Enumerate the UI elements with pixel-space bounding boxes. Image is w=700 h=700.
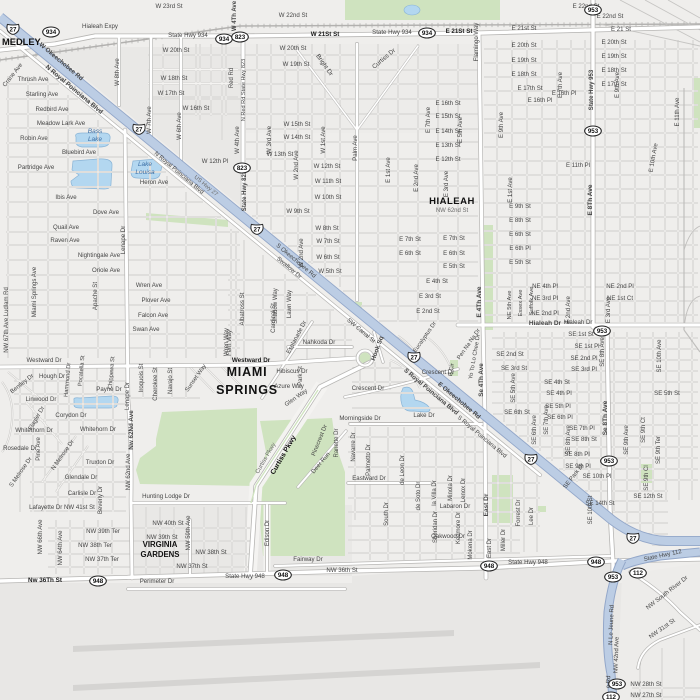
svg-text:NW 37th Ter: NW 37th Ter — [85, 556, 119, 563]
svg-text:HIALEAH: HIALEAH — [429, 196, 475, 207]
svg-text:Linwood Dr: Linwood Dr — [26, 396, 57, 403]
svg-text:Whitehorn Dr: Whitehorn Dr — [80, 426, 116, 433]
svg-text:Heron Ave: Heron Ave — [140, 179, 169, 186]
svg-text:27: 27 — [411, 355, 418, 362]
svg-text:SE 8th Ave: SE 8th Ave — [600, 337, 606, 367]
svg-text:NW 39th Ter: NW 39th Ter — [86, 528, 120, 535]
svg-text:NE 2nd Pl: NE 2nd Pl — [531, 310, 558, 317]
svg-text:NW 40th St: NW 40th St — [152, 520, 183, 527]
svg-text:MEDLEY: MEDLEY — [2, 37, 42, 47]
svg-text:E 8Th Ave: E 8Th Ave — [587, 184, 594, 215]
svg-text:E 7th St: E 7th St — [443, 235, 465, 242]
svg-text:NW 36th St: NW 36th St — [326, 567, 357, 574]
svg-text:de Soto Dr: de Soto Dr — [416, 482, 422, 511]
svg-text:Westward Dr: Westward Dr — [232, 357, 271, 364]
svg-text:Apache St: Apache St — [92, 282, 99, 310]
svg-text:E 5th St: E 5th St — [443, 263, 465, 270]
svg-text:948: 948 — [93, 578, 104, 585]
svg-text:E 6th St: E 6th St — [509, 231, 531, 238]
svg-text:Lenape Dr: Lenape Dr — [125, 382, 131, 410]
svg-text:Meadow Lark Ave: Meadow Lark Ave — [37, 120, 86, 127]
svg-text:Flamingo Way: Flamingo Way — [473, 22, 480, 62]
svg-text:NW 67th Ave Ludlam Rd: NW 67th Ave Ludlam Rd — [4, 287, 10, 353]
svg-text:W 4th Ave: W 4th Ave — [234, 126, 241, 154]
svg-text:Thrush Ave: Thrush Ave — [18, 76, 49, 83]
svg-text:SE 12th St: SE 12th St — [633, 493, 662, 500]
svg-text:Navajo St: Navajo St — [168, 368, 174, 394]
svg-text:Glendale Dr: Glendale Dr — [65, 474, 98, 481]
svg-text:934: 934 — [46, 29, 57, 36]
svg-text:27: 27 — [630, 536, 637, 543]
svg-text:Lake Dr: Lake Dr — [413, 412, 434, 419]
svg-text:E 6th St: E 6th St — [399, 250, 421, 257]
svg-text:E 6th Pl: E 6th Pl — [509, 245, 530, 252]
svg-text:SE 7th Ave: SE 7th Ave — [544, 405, 550, 435]
svg-text:State Hwy 953: State Hwy 953 — [589, 69, 595, 110]
svg-text:Sheridan Dr: Sheridan Dr — [433, 511, 439, 543]
svg-text:NW 28th St: NW 28th St — [630, 681, 661, 688]
svg-text:SE 8th Ave: SE 8th Ave — [566, 425, 572, 455]
svg-text:Corydon Dr: Corydon Dr — [55, 412, 86, 419]
svg-text:SE 5th Ave: SE 5th Ave — [511, 373, 517, 403]
svg-text:W 9th St: W 9th St — [286, 208, 310, 215]
svg-text:Essex Ave: Essex Ave — [518, 290, 524, 317]
svg-text:E 12th St: E 12th St — [435, 156, 460, 163]
svg-text:Navarre Dr: Navarre Dr — [351, 432, 357, 461]
svg-text:SE 9th Cl: SE 9th Cl — [644, 465, 650, 490]
svg-text:Nw 62Nd Ave: Nw 62Nd Ave — [128, 410, 135, 450]
svg-text:Nightingale Ave: Nightingale Ave — [78, 252, 121, 259]
svg-text:Swan Ave: Swan Ave — [133, 326, 161, 333]
svg-text:948: 948 — [278, 572, 289, 579]
svg-text:SE 3rd Pl: SE 3rd Pl — [571, 366, 597, 373]
svg-text:SE 1st Pl: SE 1st Pl — [574, 343, 599, 350]
svg-text:SE 10th St: SE 10th St — [588, 495, 594, 524]
svg-text:Westward Dr: Westward Dr — [26, 357, 61, 364]
svg-text:NW 38th St: NW 38th St — [195, 549, 226, 556]
svg-text:E 3rd St: E 3rd St — [419, 293, 441, 300]
svg-text:Morningside Dr: Morningside Dr — [339, 415, 380, 422]
svg-text:South Dr: South Dr — [384, 502, 390, 526]
svg-text:948: 948 — [484, 563, 495, 570]
svg-text:E 6th St: E 6th St — [443, 250, 465, 257]
svg-text:E 3rd Ave: E 3rd Ave — [443, 170, 450, 197]
svg-text:27: 27 — [10, 27, 17, 34]
svg-text:Ranette Dr: Ranette Dr — [334, 428, 340, 457]
svg-text:Mokena Dr: Mokena Dr — [468, 530, 474, 559]
svg-text:SE 4th Pl: SE 4th Pl — [546, 390, 571, 397]
svg-text:Se 4Th Ave: Se 4Th Ave — [478, 363, 485, 397]
svg-text:East Dr: East Dr — [483, 493, 490, 516]
svg-text:NW 59th Ave: NW 59th Ave — [186, 515, 192, 551]
svg-text:NE 5th Ave: NE 5th Ave — [507, 291, 513, 320]
svg-text:de Leon Dr: de Leon Dr — [400, 455, 406, 485]
svg-text:W 3rd Ave: W 3rd Ave — [266, 125, 273, 154]
svg-text:Dove Ave: Dove Ave — [93, 209, 120, 216]
svg-text:Lafayette Dr NW 41st St: Lafayette Dr NW 41st St — [29, 504, 95, 511]
svg-text:SE 4th St: SE 4th St — [544, 379, 570, 386]
svg-text:State Hwy 948: State Hwy 948 — [508, 559, 548, 566]
svg-text:Edison Dr: Edison Dr — [265, 520, 271, 546]
svg-text:E 16th Pl: E 16th Pl — [528, 97, 553, 104]
svg-text:934: 934 — [219, 36, 230, 43]
svg-text:W 4Th Ave: W 4Th Ave — [232, 0, 238, 31]
svg-text:Bass: Bass — [88, 128, 103, 135]
svg-text:Raven Ave: Raven Ave — [50, 237, 80, 244]
svg-text:NW 27th St: NW 27th St — [630, 692, 661, 699]
svg-text:W 18th St: W 18th St — [161, 75, 188, 82]
svg-text:E 19th St: E 19th St — [601, 53, 626, 60]
svg-text:E 21 St: E 21 St — [611, 26, 631, 33]
svg-text:Quail Ave: Quail Ave — [53, 224, 80, 231]
svg-text:SE 7th Pl: SE 7th Pl — [569, 425, 594, 432]
svg-text:W 22nd St: W 22nd St — [279, 12, 308, 19]
svg-text:27: 27 — [136, 127, 143, 134]
svg-text:GARDENS: GARDENS — [141, 550, 180, 559]
svg-text:Hough Dr: Hough Dr — [39, 373, 65, 380]
svg-text:MIAMI: MIAMI — [227, 365, 268, 379]
svg-text:823: 823 — [235, 34, 246, 41]
svg-text:W 21St St: W 21St St — [311, 31, 340, 38]
svg-text:948: 948 — [591, 559, 602, 566]
svg-text:953: 953 — [588, 7, 599, 14]
svg-text:SE 5th St: SE 5th St — [654, 390, 680, 397]
svg-text:SE 2nd St: SE 2nd St — [496, 351, 524, 358]
svg-text:W 20th St: W 20th St — [163, 47, 190, 54]
svg-text:Fairway Dr: Fairway Dr — [293, 556, 322, 563]
svg-text:Pine Ave: Pine Ave — [36, 437, 42, 461]
svg-text:NW 62nd Ave: NW 62nd Ave — [126, 453, 132, 490]
svg-text:N Red Rd State Hwy 823: N Red Rd State Hwy 823 — [241, 59, 247, 122]
svg-text:953: 953 — [597, 328, 608, 335]
svg-text:NW 64th Ave: NW 64th Ave — [58, 530, 64, 566]
svg-text:27: 27 — [254, 227, 261, 234]
svg-text:E 7th St: E 7th St — [399, 236, 421, 243]
svg-text:Nw 36Th St: Nw 36Th St — [28, 577, 63, 584]
svg-text:934: 934 — [422, 30, 433, 37]
svg-text:Fern Way: Fern Way — [227, 330, 233, 356]
svg-text:E 3rd Ave: E 3rd Ave — [605, 296, 612, 323]
svg-text:W 15th St: W 15th St — [284, 121, 311, 128]
svg-text:Lake: Lake — [88, 136, 102, 143]
svg-text:E 5th St: E 5th St — [509, 259, 531, 266]
svg-text:East Dr: East Dr — [487, 538, 493, 558]
svg-text:Carlisle Dr: Carlisle Dr — [68, 490, 96, 497]
svg-text:W 8th St: W 8th St — [315, 225, 339, 232]
svg-text:Minola Dr: Minola Dr — [448, 475, 454, 501]
svg-text:State Hwy 934: State Hwy 934 — [168, 32, 208, 39]
svg-text:W 7th St: W 7th St — [316, 238, 340, 245]
svg-text:Robin Ave: Robin Ave — [20, 135, 48, 142]
svg-text:Beverly Dr: Beverly Dr — [98, 486, 104, 514]
svg-text:State Hwy 934: State Hwy 934 — [372, 29, 412, 36]
svg-text:SE 9th Ter: SE 9th Ter — [656, 436, 662, 464]
svg-text:E 19th St: E 19th St — [511, 57, 536, 64]
svg-text:Starling Ave: Starling Ave — [26, 91, 59, 98]
svg-text:Rosedale Dr: Rosedale Dr — [3, 445, 37, 452]
svg-text:W 12th Pl: W 12th Pl — [202, 158, 228, 165]
svg-text:State Hwy 948: State Hwy 948 — [225, 573, 265, 580]
svg-text:NE 2nd Pl: NE 2nd Pl — [606, 283, 633, 290]
svg-text:E 4th St: E 4th St — [426, 278, 448, 285]
svg-text:Hialeah Expy: Hialeah Expy — [82, 23, 119, 30]
svg-text:W 11th St: W 11th St — [315, 178, 342, 185]
svg-text:SE 8th St: SE 8th St — [571, 436, 597, 443]
svg-text:Miller Dr: Miller Dr — [501, 529, 507, 551]
svg-text:NW 66th Ave: NW 66th Ave — [38, 519, 44, 555]
svg-text:NE 3rd Pl: NE 3rd Pl — [532, 295, 558, 302]
svg-text:W 20th St: W 20th St — [280, 45, 307, 52]
svg-text:E 7th Ave: E 7th Ave — [425, 106, 432, 133]
svg-text:SE 3rd St: SE 3rd St — [501, 365, 527, 372]
svg-text:953: 953 — [588, 128, 599, 135]
svg-text:W 14th St: W 14th St — [284, 134, 311, 141]
svg-text:112: 112 — [606, 694, 617, 700]
svg-text:SE 6th Ave: SE 6th Ave — [532, 415, 538, 445]
svg-text:Plover Ave: Plover Ave — [141, 297, 171, 304]
svg-text:Wren Ave: Wren Ave — [136, 282, 163, 289]
svg-text:E 9th St: E 9th St — [509, 203, 531, 210]
svg-text:W 17th St: W 17th St — [158, 90, 185, 97]
svg-text:E 9th Ave: E 9th Ave — [614, 71, 621, 98]
svg-text:E 18th St: E 18th St — [511, 71, 536, 78]
svg-text:823: 823 — [237, 165, 248, 172]
svg-text:Lake: Lake — [138, 161, 152, 168]
svg-text:27: 27 — [528, 457, 535, 464]
svg-text:Hialeah Dr: Hialeah Dr — [529, 320, 562, 327]
svg-text:E 16th St: E 16th St — [435, 100, 460, 107]
svg-text:Forrest Dr: Forrest Dr — [516, 499, 522, 526]
svg-text:Truxton Dr: Truxton Dr — [86, 459, 115, 466]
svg-text:E 20th St: E 20th St — [601, 39, 626, 46]
svg-text:W 5th St: W 5th St — [318, 268, 342, 275]
svg-text:Miami Springs Ave: Miami Springs Ave — [31, 266, 38, 317]
svg-text:Palm Ave: Palm Ave — [352, 135, 359, 161]
svg-text:Se 8Th Ave: Se 8Th Ave — [602, 400, 609, 435]
svg-text:SE 2nd Pl: SE 2nd Pl — [570, 355, 597, 362]
svg-text:W 23rd St: W 23rd St — [155, 3, 182, 10]
svg-text:W 19th St: W 19th St — [283, 61, 310, 68]
svg-text:SE 6th St: SE 6th St — [504, 409, 530, 416]
svg-text:Albatross St: Albatross St — [239, 292, 246, 325]
svg-text:Crescent Dr: Crescent Dr — [352, 385, 385, 392]
svg-text:SE 1st St: SE 1st St — [568, 331, 594, 338]
svg-text:Nahkoda Dr: Nahkoda Dr — [303, 339, 336, 346]
svg-text:Cardinal St: Cardinal St — [271, 303, 277, 333]
svg-text:Bluebird Ave: Bluebird Ave — [62, 149, 97, 156]
svg-text:Hunting Lodge Dr: Hunting Lodge Dr — [142, 493, 190, 500]
svg-text:W 6th Ave: W 6th Ave — [176, 112, 183, 140]
svg-text:W 6th St: W 6th St — [316, 254, 340, 261]
svg-text:Lenape Dr: Lenape Dr — [120, 226, 127, 254]
svg-text:953: 953 — [608, 574, 619, 581]
svg-text:W 7th Ave: W 7th Ave — [146, 106, 153, 134]
svg-text:112: 112 — [633, 570, 644, 577]
svg-text:NW 62nd St: NW 62nd St — [436, 208, 469, 214]
svg-text:E 1st Ave: E 1st Ave — [507, 177, 514, 203]
svg-text:NW 38th Ter: NW 38th Ter — [78, 542, 112, 549]
svg-text:W 8th Ave: W 8th Ave — [114, 58, 121, 86]
svg-text:SPRINGS: SPRINGS — [216, 383, 278, 397]
svg-text:Lawn Way: Lawn Way — [286, 289, 293, 318]
svg-text:E 22nd St: E 22nd St — [597, 13, 624, 20]
svg-text:Louisa: Louisa — [135, 169, 155, 176]
svg-text:SE 10th Ave: SE 10th Ave — [657, 339, 663, 373]
svg-text:W 1st Ave: W 1st Ave — [320, 126, 327, 154]
svg-text:E 2nd Ave: E 2nd Ave — [413, 164, 420, 192]
svg-text:E 5th Ave: E 5th Ave — [457, 116, 464, 143]
svg-text:SE 9th Ct: SE 9th Ct — [641, 417, 647, 443]
svg-text:Park St: Park St — [298, 366, 304, 386]
svg-text:SE 10th Pl: SE 10th Pl — [583, 473, 612, 480]
svg-text:Labaron Dr: Labaron Dr — [440, 503, 471, 510]
svg-text:E 21st St: E 21st St — [512, 25, 537, 32]
svg-text:E 1st Ave: E 1st Ave — [385, 157, 392, 183]
svg-text:E 16th Pl: E 16th Pl — [552, 91, 576, 97]
svg-text:Falcon Ave: Falcon Ave — [138, 312, 169, 319]
svg-text:Lenox Dr: Lenox Dr — [461, 478, 467, 502]
svg-text:SE 6th Pl: SE 6th Pl — [547, 414, 572, 421]
svg-text:E 11th Ave: E 11th Ave — [674, 97, 681, 127]
svg-text:Lee Dr: Lee Dr — [529, 507, 535, 525]
svg-text:E 9th Ave: E 9th Ave — [498, 111, 505, 138]
svg-text:E 4Th Ave: E 4Th Ave — [476, 286, 483, 317]
svg-text:Palmetto Dr: Palmetto Dr — [366, 444, 372, 476]
svg-text:Iroquois St: Iroquois St — [139, 363, 145, 392]
svg-text:E 11th Pl: E 11th Pl — [566, 163, 590, 169]
svg-text:NW 37th St: NW 37th St — [176, 563, 207, 570]
svg-text:Redbird Ave: Redbird Ave — [35, 106, 69, 113]
svg-text:W 2nd Ave: W 2nd Ave — [293, 150, 300, 180]
svg-text:Keemore Dr: Keemore Dr — [456, 512, 462, 544]
svg-text:Hialeah Dr: Hialeah Dr — [564, 319, 593, 326]
svg-text:Partridge Ave: Partridge Ave — [18, 164, 55, 171]
svg-text:Perimeter Dr: Perimeter Dr — [140, 578, 175, 585]
svg-text:953: 953 — [612, 681, 623, 688]
svg-text:Suffolk Ave: Suffolk Ave — [529, 287, 535, 316]
svg-text:Red Rd: Red Rd — [229, 68, 235, 88]
svg-text:E 17th St: E 17th St — [517, 85, 542, 92]
svg-text:W 16th St: W 16th St — [183, 105, 210, 112]
svg-text:NW 39th St: NW 39th St — [146, 534, 177, 541]
svg-text:Oriole Ave: Oriole Ave — [92, 267, 121, 274]
svg-text:953: 953 — [604, 458, 615, 465]
svg-text:E 21St St: E 21St St — [446, 28, 473, 35]
svg-text:E 20th St: E 20th St — [511, 42, 536, 49]
svg-text:W 10th St: W 10th St — [315, 194, 342, 201]
svg-text:VIRGINIA: VIRGINIA — [143, 540, 178, 549]
svg-text:E 2nd St: E 2nd St — [416, 308, 440, 315]
svg-text:W 12th St: W 12th St — [314, 163, 341, 170]
svg-text:Cherokee St: Cherokee St — [153, 367, 159, 401]
svg-text:SE 9th Ave: SE 9th Ave — [624, 425, 630, 455]
svg-text:Ibis Ave: Ibis Ave — [55, 194, 77, 201]
svg-text:State Hwy 823: State Hwy 823 — [242, 170, 248, 211]
svg-text:NE 4th Pl: NE 4th Pl — [532, 283, 558, 290]
svg-text:la Villa Dr: la Villa Dr — [432, 480, 438, 506]
svg-text:E 8th St: E 8th St — [509, 217, 531, 224]
